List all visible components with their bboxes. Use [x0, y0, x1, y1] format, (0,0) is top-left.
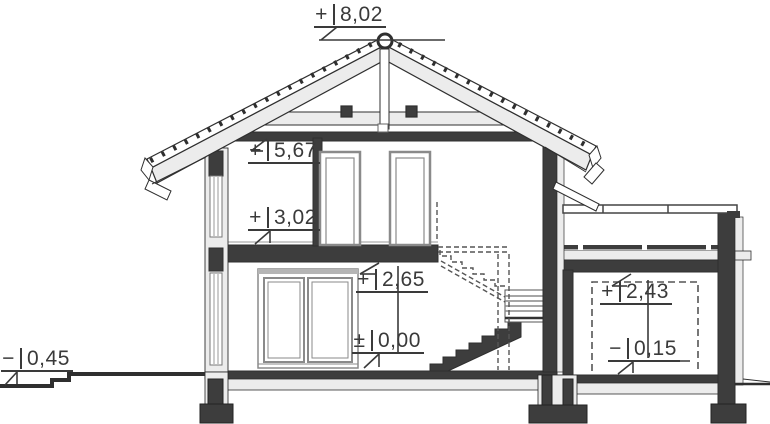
level-marker-ground-floor: ±0,00 [352, 330, 424, 354]
level-value: 0,00 [378, 330, 421, 351]
level-sign: + [249, 207, 262, 228]
level-tick [371, 330, 373, 351]
level-value: 0,15 [634, 338, 677, 359]
level-sign: + [357, 269, 370, 290]
annex-right-wall [718, 212, 735, 407]
level-value: 5,67 [274, 140, 317, 161]
level-tick [267, 140, 269, 161]
right-wall [543, 144, 557, 372]
grade-line-left [0, 374, 205, 386]
level-sign: + [249, 140, 262, 161]
level-sign: + [315, 4, 328, 25]
level-value: 0,45 [27, 348, 70, 369]
level-sign: − [609, 338, 622, 359]
level-sign: ± [353, 330, 366, 351]
level-sign: + [601, 281, 614, 302]
level-tick [627, 338, 629, 359]
level-tick [267, 207, 269, 228]
staircase [430, 202, 545, 371]
stair-landing [505, 290, 545, 322]
level-sign: − [2, 348, 15, 369]
stair-lower-flight [430, 322, 521, 371]
level-marker-grade: −0,45 [1, 348, 73, 372]
level-value: 8,02 [340, 4, 383, 25]
level-marker-upper-floor: +3,02 [248, 207, 320, 231]
level-value: 2,43 [626, 281, 669, 302]
level-tick [375, 269, 377, 290]
level-marker-garage-floor: −0,15 [608, 338, 680, 362]
ridge-cap [378, 34, 392, 48]
cross-section-drawing: +8,02 +5,67 +3,02 +2,65 ±0,00 +2,43 −0,1… [0, 0, 770, 424]
purlin [406, 106, 417, 117]
level-tick [333, 4, 335, 25]
level-value: 3,02 [274, 207, 317, 228]
interior-doors [320, 152, 430, 245]
level-tick [20, 348, 22, 369]
level-tick [619, 281, 621, 302]
level-marker-ridge: +8,02 [314, 4, 386, 28]
purlin [341, 106, 352, 117]
level-marker-annex-ceiling: +2,43 [600, 281, 672, 305]
ground-floor-window [258, 269, 358, 368]
level-value: 2,65 [382, 269, 425, 290]
level-marker-ground-ceiling: +2,65 [356, 269, 428, 293]
level-marker-upper-ceiling: +5,67 [248, 140, 320, 164]
